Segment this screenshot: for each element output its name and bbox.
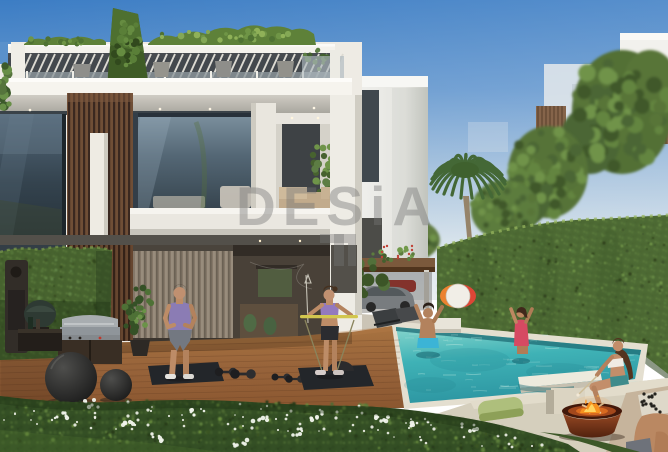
svg-text:DESiA: DESiA (236, 175, 439, 237)
